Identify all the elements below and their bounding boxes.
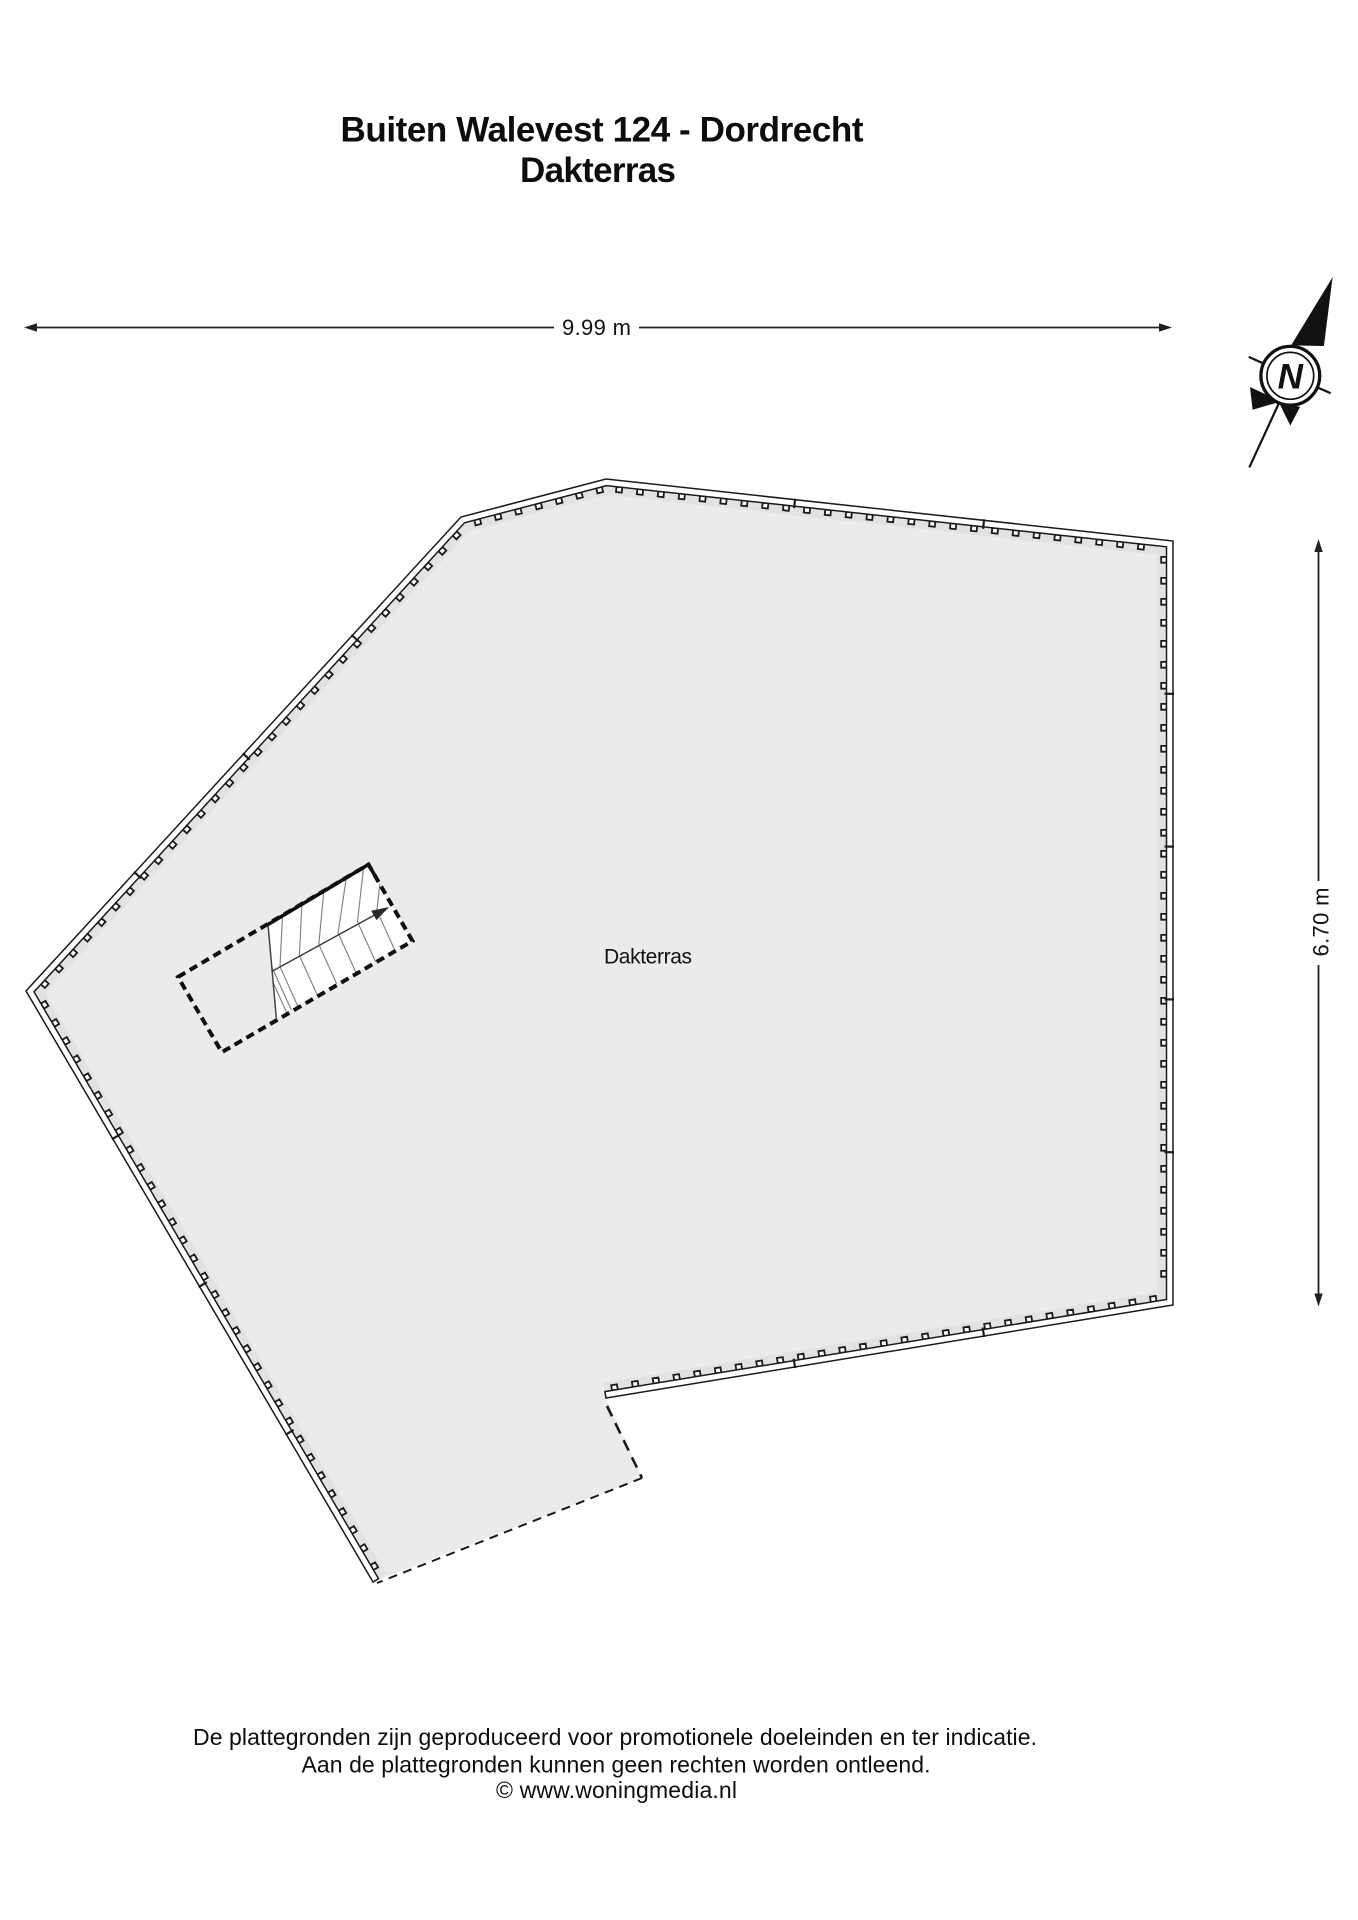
svg-text:Dakterras: Dakterras	[604, 946, 692, 969]
svg-text:De plattegronden zijn geproduc: De plattegronden zijn geproduceerd voor …	[193, 1724, 1037, 1750]
svg-text:9.99 m: 9.99 m	[562, 315, 631, 340]
svg-text:N: N	[1278, 358, 1304, 397]
svg-text:Dakterras: Dakterras	[520, 151, 676, 190]
svg-text:© www.woningmedia.nl: © www.woningmedia.nl	[496, 1777, 737, 1803]
svg-text:6.70 m: 6.70 m	[1309, 888, 1334, 957]
svg-text:Aan de plattegronden kunnen ge: Aan de plattegronden kunnen geen rechten…	[302, 1752, 931, 1778]
svg-text:Buiten Walevest 124 - Dordrech: Buiten Walevest 124 - Dordrecht	[341, 111, 864, 150]
